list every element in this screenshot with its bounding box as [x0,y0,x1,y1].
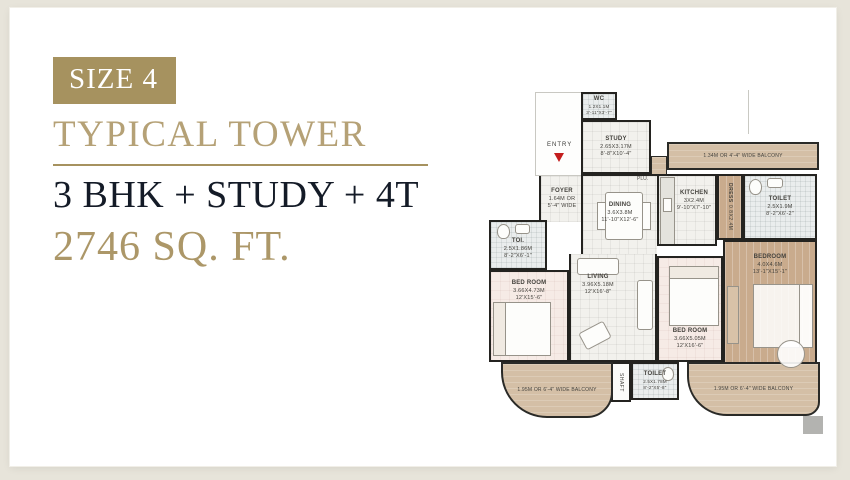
room-wc: WC 1.2X1.1M 3'-11"X3'-7" [581,92,617,120]
room-toilet-bottom: TOILET 2.5X1.78M 8'-2"X5'-8" [631,362,679,400]
balcony-bottom-left-label: 1.95M OR 6'-4" WIDE BALCONY [517,387,596,394]
tower-title: TYPICAL TOWER [53,113,453,156]
toilet-left-wc-pan [497,224,510,239]
lounge-chair [578,321,612,351]
room-study: STUDY 2.65X3.17M 8'-8"X10'-4" [581,120,651,174]
master-bed-pillows [799,284,813,348]
shaft-label: SHAFT [618,373,624,392]
entry-label: ENTRY [547,142,572,148]
balcony-bottom-left: 1.95M OR 6'-4" WIDE BALCONY [501,362,613,418]
room-dining: DINING 3.6X3.8M 11'-10"X12'-6" [581,174,657,254]
room-toilet-top-label: TOILET 2.5X1.9M 8'-2"X6'-2" [766,196,794,218]
room-living: LIVING 3.96X5.18M 12'X16'-8" [569,254,657,362]
room-dining-label: DINING 3.6X3.8M 11'-10"X12'-6" [583,202,657,224]
dimension-line [748,90,749,134]
room-living-label: LIVING 3.96X5.18M 12'X16'-8" [571,274,625,296]
configuration-text: 3 BHK + STUDY + 4T [53,173,453,217]
toilet-top-basin [767,178,783,188]
room-bedroom-bottom-label: BED ROOM 3.66X5.05M 12'X16'-6" [659,328,721,350]
sofa [577,258,619,275]
room-dress-label: DRESS 0.8X2.4M [727,183,733,230]
entry-zone [535,92,583,176]
room-foyer-label: FOYER 1.64M OR 5'-4" WIDE [548,188,577,210]
room-bedroom-bottom: BED ROOM 3.66X5.05M 12'X16'-6" [657,256,723,362]
room-bedroom-master: BEDROOM 4.0X4.6M 13'-1"X15'-1" [723,240,817,376]
shaft: SHAFT [611,362,631,402]
room-dress: DRESS 0.8X2.4M [717,174,743,240]
room-toilet-left: TOI. 2.5X1.86M 8'-2"X6'-1" [489,220,547,270]
room-bedroom-left: BED ROOM 3.66X4.73M 12'X15'-6" [489,270,569,362]
room-toilet-bottom-label: TOILET 2.5X1.78M 8'-2"X5'-8" [643,371,667,390]
area-text: 2746 SQ. FT. [53,223,453,271]
room-foyer: FOYER 1.64M OR 5'-4" WIDE [539,176,583,222]
tv-unit [637,280,653,330]
size-badge: SIZE 4 [53,57,176,104]
floor-plan: ENTRY WC 1.2X1.1M 3'-11"X3'-7" STUDY 2.6… [465,84,831,440]
left-bed-pillows [493,302,506,356]
toilet-top-wc-pan [749,179,762,195]
balcony-top-label: 1.34M OR 4'-4" WIDE BALCONY [703,153,782,160]
room-toilet-left-label: TOI. 2.5X1.86M 8'-2"X6'-1" [504,238,532,260]
marketing-card: SIZE 4 TYPICAL TOWER 3 BHK + STUDY + 4T … [10,8,836,466]
info-panel: SIZE 4 TYPICAL TOWER 3 BHK + STUDY + 4T … [53,57,453,271]
balcony-bottom-right-label: 1.95M OR 6'-4" WIDE BALCONY [714,386,793,393]
divider-rule [53,164,428,166]
room-kitchen: KITCHEN 3X2.4M 9'-10"X7'-10" [657,174,717,246]
room-wc-label: WC 1.2X1.1M 3'-11"X3'-7" [586,96,612,115]
entry-arrow-icon [554,153,564,162]
balcony-top: 1.34M OR 4'-4" WIDE BALCONY [667,142,819,170]
master-wardrobe [727,286,739,344]
column-marker [803,416,823,434]
round-chair [777,340,805,368]
plumbing-label: PLU. [637,176,648,182]
room-toilet-top: TOILET 2.5X1.9M 8'-2"X6'-2" [743,174,817,240]
toilet-left-basin [515,224,530,234]
bottom-bed-pillows [669,266,719,279]
room-study-label: STUDY 2.65X3.17M 8'-8"X10'-4" [600,136,632,158]
room-kitchen-label: KITCHEN 3X2.4M 9'-10"X7'-10" [673,190,715,212]
balcony-bottom-right: 1.95M OR 6'-4" WIDE BALCONY [687,362,820,416]
kitchen-sink [663,198,672,212]
room-bedroom-master-label: BEDROOM 4.0X4.6M 13'-1"X15'-1" [725,254,815,276]
room-bedroom-left-label: BED ROOM 3.66X4.73M 12'X15'-6" [491,280,567,302]
